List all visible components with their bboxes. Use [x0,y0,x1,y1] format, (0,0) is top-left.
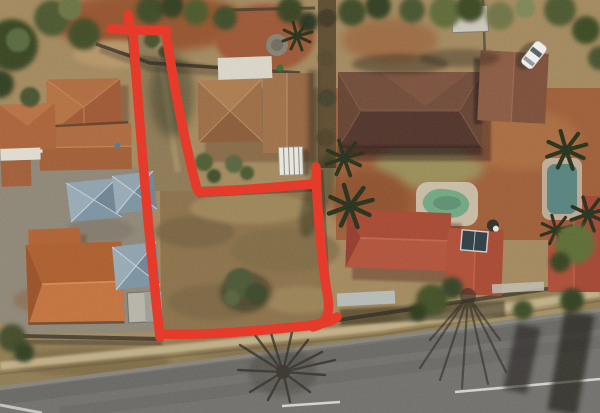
photo-grain-overlay [0,0,600,413]
screenshot-root [0,0,600,413]
aerial-photo-canvas[interactable] [0,0,600,413]
red-stroke-top-bar [111,29,167,31]
